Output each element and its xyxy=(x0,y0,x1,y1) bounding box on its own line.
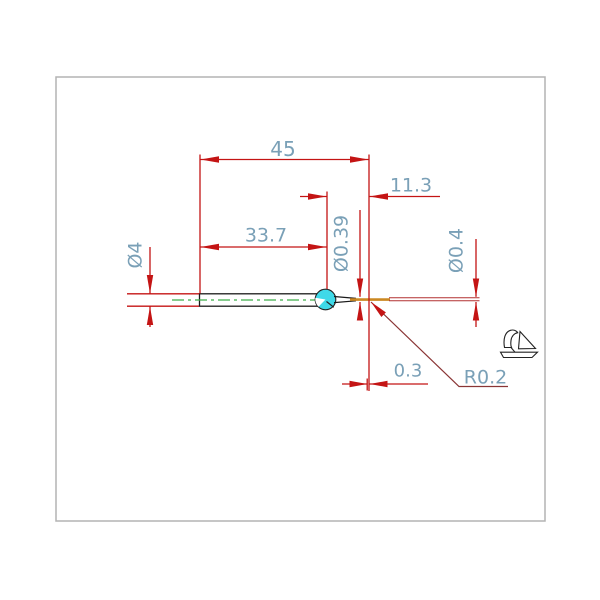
dimension-tip-diameter-label: Ø0.39 xyxy=(331,215,353,272)
dimension-end-diameter-label: Ø0.4 xyxy=(446,228,468,273)
dimension-overall-length-label: 45 xyxy=(270,137,295,161)
arrowhead xyxy=(308,193,327,200)
bird-logo-icon xyxy=(501,330,538,358)
cad-drawing-page: 45 11.3 33.7 Ø0.39 Ø4 Ø0.4 0.3 R0.2 xyxy=(0,0,600,600)
cad-drawing-canvas: 45 11.3 33.7 Ø0.39 Ø4 Ø0.4 0.3 R0.2 xyxy=(0,0,600,600)
tip-taper-bottom xyxy=(334,301,356,303)
dimension-ball-center-label: 33.7 xyxy=(245,225,287,247)
arrowhead xyxy=(370,193,389,200)
dimension-tip-flat-label: 0.3 xyxy=(394,361,423,382)
stylus-ball xyxy=(315,289,336,310)
bird-body xyxy=(511,348,515,353)
dimension-shank-diameter-label: Ø4 xyxy=(125,241,147,268)
arrowhead xyxy=(350,381,368,387)
arrowhead xyxy=(473,279,479,297)
arrowhead xyxy=(357,302,363,321)
stylus-tip xyxy=(334,297,390,303)
bird-neck xyxy=(504,330,518,348)
dimension-labels: 45 11.3 33.7 Ø0.39 Ø4 Ø0.4 0.3 R0.2 xyxy=(125,137,508,389)
dimension-tip-radius-label: R0.2 xyxy=(464,367,507,389)
arrowhead xyxy=(308,244,327,251)
arrowhead xyxy=(147,307,153,326)
arrowhead xyxy=(473,302,479,321)
arrowhead xyxy=(370,381,388,387)
arrowhead xyxy=(357,279,363,297)
bird-hull xyxy=(501,352,538,357)
arrowhead xyxy=(350,156,369,163)
bird-wing xyxy=(519,332,536,349)
stylus-part xyxy=(172,289,390,310)
arrowhead xyxy=(201,244,220,251)
arrowhead xyxy=(147,275,153,294)
arrowhead xyxy=(201,156,220,163)
tip-taper-top xyxy=(334,297,356,299)
dimension-tip-length-label: 11.3 xyxy=(390,175,432,197)
